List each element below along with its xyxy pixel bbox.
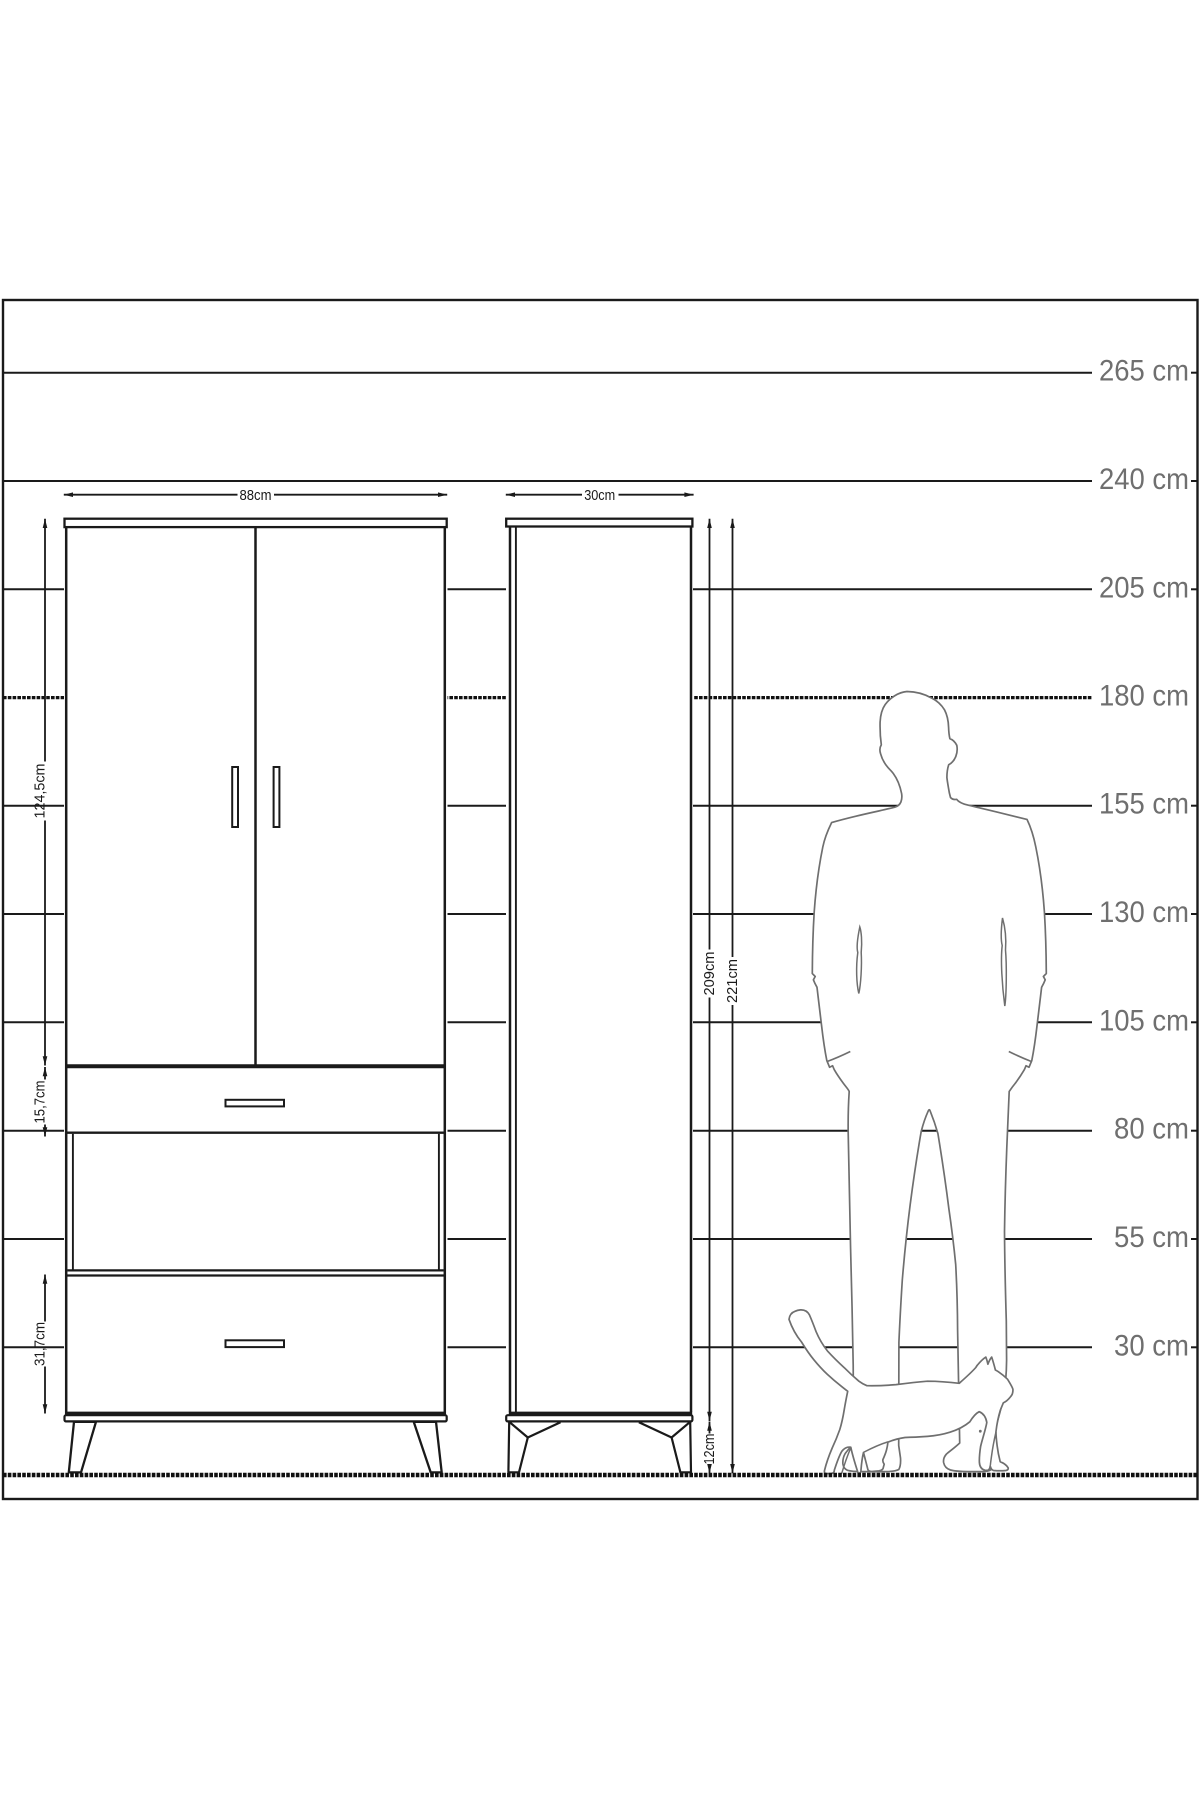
svg-text:265 cm: 265 cm	[1099, 355, 1189, 388]
svg-text:15,7cm: 15,7cm	[32, 1081, 48, 1124]
svg-text:221cm: 221cm	[725, 959, 741, 1003]
svg-text:180 cm: 180 cm	[1099, 680, 1189, 713]
svg-text:124,5cm: 124,5cm	[32, 764, 48, 819]
svg-text:55 cm: 55 cm	[1114, 1221, 1189, 1254]
svg-text:12cm: 12cm	[702, 1434, 718, 1465]
svg-text:205 cm: 205 cm	[1099, 571, 1189, 604]
svg-text:88cm: 88cm	[240, 488, 272, 504]
svg-text:105 cm: 105 cm	[1099, 1004, 1189, 1037]
svg-text:130 cm: 130 cm	[1099, 896, 1189, 929]
svg-text:30cm: 30cm	[584, 488, 615, 504]
svg-text:80 cm: 80 cm	[1114, 1113, 1189, 1146]
svg-text:31,7cm: 31,7cm	[32, 1322, 48, 1366]
svg-text:240 cm: 240 cm	[1099, 463, 1189, 496]
svg-text:155 cm: 155 cm	[1099, 788, 1189, 821]
svg-text:30 cm: 30 cm	[1114, 1329, 1189, 1362]
svg-text:209cm: 209cm	[702, 952, 718, 996]
